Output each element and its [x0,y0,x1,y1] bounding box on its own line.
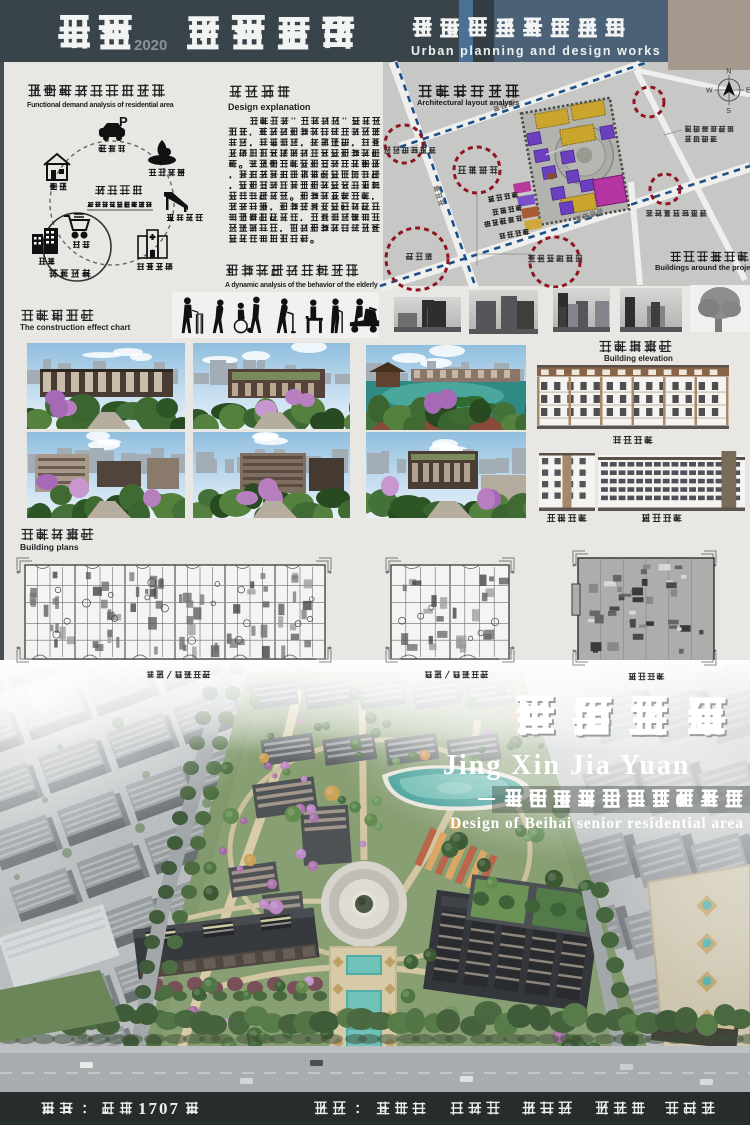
svg-text:Jing Xin Jia Yuan: Jing Xin Jia Yuan [443,750,690,781]
svg-text:Design explanation: Design explanation [228,102,311,112]
svg-text:Functional demand analysis of: Functional demand analysis of residentia… [27,102,174,109]
svg-text:W: W [706,88,713,95]
svg-text:P: P [119,114,128,129]
svg-text:Urban planning and design work: Urban planning and design works [411,44,661,58]
svg-text:N: N [726,69,731,76]
svg-text:A dynamic analysis of the beha: A dynamic analysis of the behavior of th… [225,282,378,289]
svg-text:Building plans: Building plans [20,542,79,552]
svg-text:Building elevation: Building elevation [604,354,673,363]
svg-text:2020: 2020 [134,37,167,54]
svg-text:S: S [726,108,731,115]
svg-text:Design of Beihai senior reside: Design of Beihai senior residential area [450,815,744,832]
svg-text:Architectural layout analysis: Architectural layout analysis [417,98,519,107]
svg-text:1707: 1707 [138,1099,180,1118]
svg-text:E: E [746,88,750,95]
svg-text:The construction effect chart: The construction effect chart [20,323,131,332]
svg-text:Buildings around the project: Buildings around the project [655,263,750,272]
